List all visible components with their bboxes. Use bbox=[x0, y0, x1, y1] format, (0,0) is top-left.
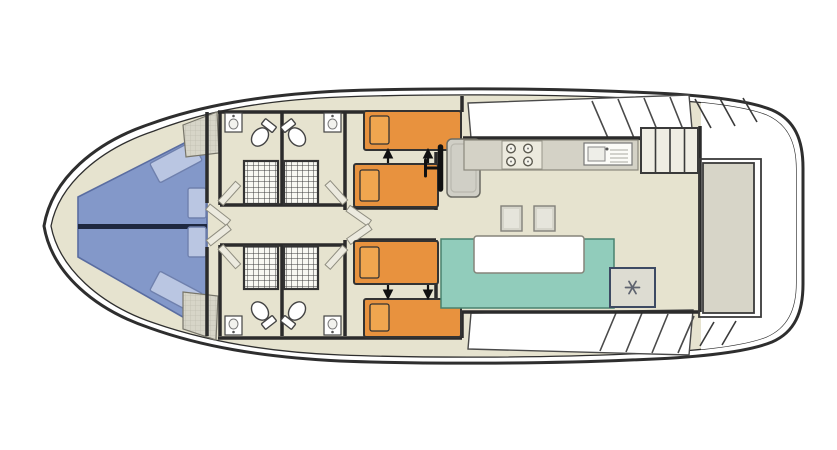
shower bbox=[284, 246, 318, 289]
stool bbox=[534, 206, 555, 231]
bathroom-sink bbox=[225, 113, 242, 132]
companionway-steps bbox=[641, 128, 698, 173]
bed-pillow bbox=[360, 170, 379, 201]
bow-cushion bbox=[188, 227, 206, 257]
stool bbox=[501, 206, 522, 231]
fridge bbox=[610, 268, 655, 307]
side-deck-bottom bbox=[468, 310, 694, 355]
galley-sink bbox=[584, 143, 632, 165]
bed-pillow bbox=[360, 247, 379, 278]
bathroom-sink bbox=[324, 316, 341, 335]
bathroom-sink bbox=[324, 113, 341, 132]
boat-floor-plan bbox=[0, 0, 837, 450]
bed-pillow bbox=[370, 116, 389, 144]
bed-pillow bbox=[370, 304, 389, 331]
shower bbox=[284, 161, 318, 204]
floor-plan-canvas bbox=[0, 0, 837, 450]
galley bbox=[464, 140, 638, 170]
shower bbox=[244, 246, 278, 289]
aft-bench bbox=[699, 159, 761, 317]
shower bbox=[244, 161, 278, 204]
bathroom-sink bbox=[225, 316, 242, 335]
dinette-table bbox=[474, 236, 584, 273]
bow-cushion bbox=[188, 188, 206, 218]
